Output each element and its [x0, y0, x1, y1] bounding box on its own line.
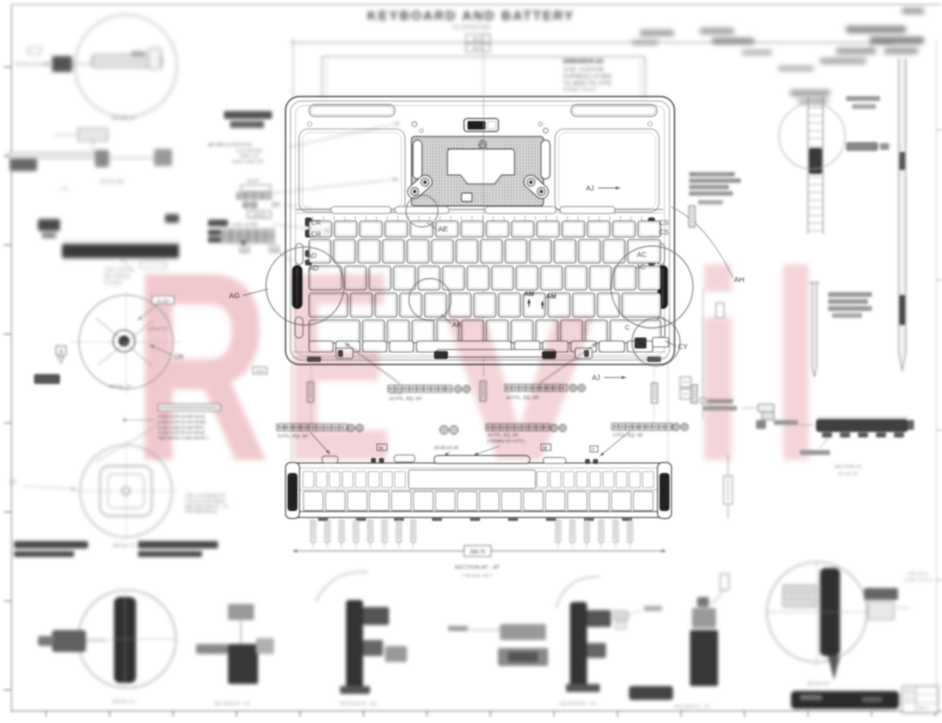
- svg-text:SCALE 2/1: SCALE 2/1: [838, 471, 859, 476]
- svg-text:B8: B8: [272, 248, 277, 252]
- svg-text:SECTION DH - DH: SECTION DH - DH: [559, 701, 596, 706]
- svg-text:SECTION AT: SECTION AT: [835, 464, 862, 469]
- svg-text:1.30 / 1.20 TOL: 1.30 / 1.20 TOL: [104, 267, 135, 272]
- svg-text:l: l: [770, 217, 822, 518]
- svg-text:DETAIL BT: DETAIL BT: [112, 116, 137, 122]
- svg-text:C: C: [625, 325, 630, 332]
- svg-text:B8: B8: [242, 249, 247, 253]
- svg-text:0.262 0.405 (0.160 REF): 0.262 0.405 (0.160 REF): [158, 425, 205, 430]
- svg-text:AC: AC: [637, 252, 647, 259]
- svg-text:1.18 TRAVEL: 1.18 TRAVEL: [236, 148, 263, 153]
- svg-text:1.021 ±0.005: 1.021 ±0.005: [231, 222, 258, 227]
- svg-text:12.304: 12.304: [157, 299, 170, 304]
- svg-text:30.10: 30.10: [473, 37, 485, 42]
- svg-text:4.05 ± 0.10 BOSS HT: 4.05 ± 0.10 BOSS HT: [185, 493, 226, 498]
- svg-text:⌀ 8.4 ± 0.1: ⌀ 8.4 ± 0.1: [148, 326, 169, 331]
- svg-text:2.10: 2.10: [60, 186, 69, 191]
- svg-text:■ 4.09/4.15 KEYCAP: ■ 4.09/4.15 KEYCAP: [209, 142, 252, 147]
- svg-text:CT: CT: [10, 480, 17, 486]
- svg-text:v: v: [445, 217, 597, 518]
- svg-text:0.462 0.575 (0.100 NOM): 0.462 0.575 (0.100 NOM): [158, 419, 206, 424]
- svg-text:SECTION AT - AT: SECTION AT - AT: [454, 565, 500, 571]
- svg-text:SC 1:1: SC 1:1: [905, 698, 916, 702]
- svg-text:AC: AC: [636, 264, 646, 271]
- svg-text:DETAIL DK: DETAIL DK: [807, 681, 829, 686]
- svg-text:KEYBOARD AND BATTERY: KEYBOARD AND BATTERY: [367, 8, 575, 23]
- svg-text:SEE SECTION CT - CT: SEE SECTION CT - CT: [185, 504, 230, 509]
- svg-text:AJ: AJ: [586, 186, 594, 193]
- svg-text:FLATNESS 0.10 MAX: FLATNESS 0.10 MAX: [563, 74, 612, 80]
- svg-text:SECTION DG - DG: SECTION DG - DG: [339, 701, 377, 706]
- svg-text:NOTED 4 PLCS: NOTED 4 PLCS: [563, 87, 596, 92]
- svg-text:i: i: [690, 217, 746, 518]
- svg-text:SEE NOTE 4 AND NOTE 7: SEE NOTE 4 AND NOTE 7: [158, 436, 209, 441]
- svg-text:SECTION DF - DF: SECTION DF - DF: [214, 701, 251, 706]
- svg-text:• SCALE 1/1 •: • SCALE 1/1 •: [462, 573, 492, 579]
- svg-text:RV-01: RV-01: [905, 689, 915, 693]
- svg-text:EP: EP: [272, 203, 280, 209]
- svg-text:12 PTL. EQ. SP.: 12 PTL. EQ. SP.: [389, 396, 422, 401]
- svg-text:2 PLCS (THIS AREA): 2 PLCS (THIS AREA): [185, 498, 226, 503]
- svg-text:→ PER UP 07: → PER UP 07: [903, 571, 929, 576]
- svg-text:E: E: [282, 217, 394, 518]
- svg-text:KEY TRAVEL: KEY TRAVEL: [104, 274, 131, 279]
- svg-text:• GMBH 07/26/10 •: • GMBH 07/26/10 •: [903, 578, 936, 582]
- svg-text:DETAIL BW: DETAIL BW: [100, 179, 125, 184]
- svg-text:0.50 ± 0.05 TYP: 0.50 ± 0.05 TYP: [232, 159, 264, 164]
- svg-text:SPEC P2: SPEC P2: [240, 154, 259, 159]
- svg-text:FOR RIB DETAIL: FOR RIB DETAIL: [185, 509, 218, 514]
- svg-text:SECTION DJ - DJ: SECTION DJ - DJ: [674, 704, 709, 709]
- svg-text:CR: CR: [174, 354, 184, 361]
- svg-text:DIMENSION AD: DIMENSION AD: [563, 59, 603, 65]
- svg-text:P2 SPEC: P2 SPEC: [104, 280, 123, 285]
- svg-text:0.862 0.975 (0.500 MAX): 0.862 0.975 (0.500 MAX): [158, 414, 205, 419]
- svg-text:284.76: 284.76: [470, 550, 486, 556]
- svg-text:TE LAYOUT/KB: TE LAYOUT/KB: [451, 25, 490, 31]
- svg-text:CY: CY: [678, 344, 688, 351]
- svg-text:CS: CS: [659, 220, 669, 227]
- svg-text:0.162 0.275 (0.210 MAX): 0.162 0.275 (0.210 MAX): [158, 430, 205, 435]
- svg-text:SHT 4: SHT 4: [918, 707, 928, 711]
- svg-text:CS: CS: [659, 230, 669, 237]
- svg-text:DETAIL CT: DETAIL CT: [109, 384, 132, 389]
- svg-text:W-W: W-W: [256, 370, 265, 374]
- svg-text:30.10: 30.10: [473, 46, 485, 51]
- svg-text:126.92: 126.92: [253, 213, 266, 218]
- svg-text:12.04: 12.04: [247, 178, 259, 183]
- svg-text:DETAIL DA: DETAIL DA: [112, 699, 136, 704]
- svg-text:DETAIL CV: DETAIL CV: [113, 543, 135, 548]
- svg-text:11.04 - 0.10/+0.08: 11.04 - 0.10/+0.08: [563, 67, 604, 73]
- svg-text:3 PTL. EQ. SP.: 3 PTL. EQ. SP.: [613, 433, 644, 438]
